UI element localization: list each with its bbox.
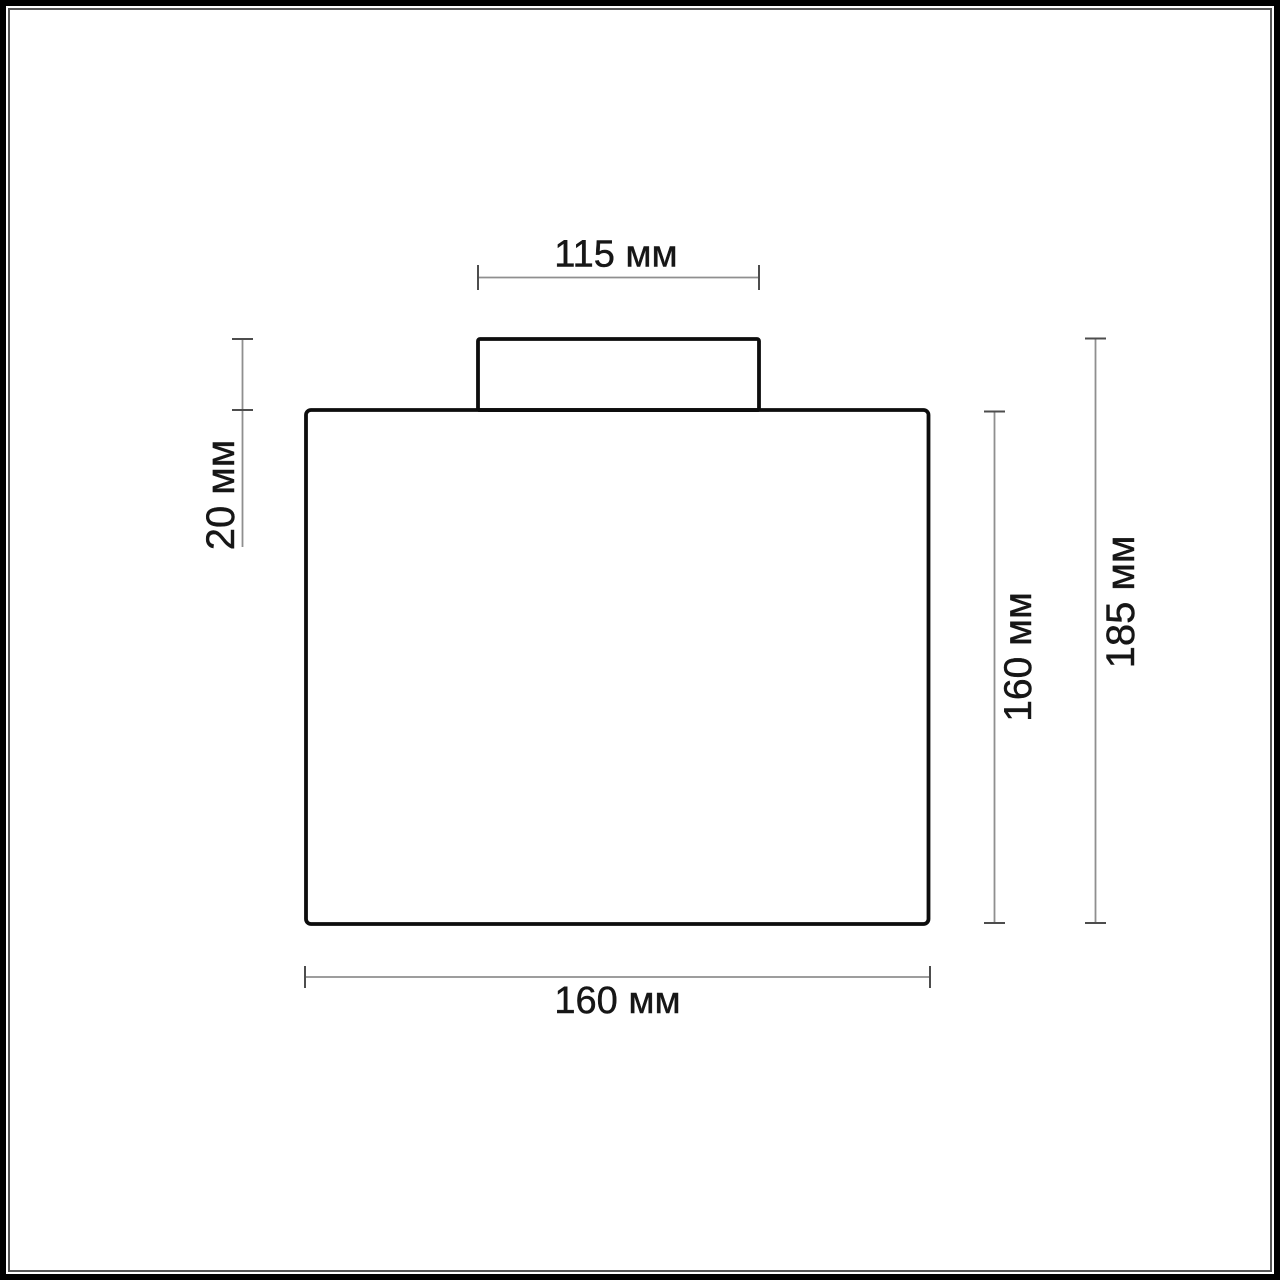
svg-text:185 мм: 185 мм <box>1099 536 1143 669</box>
svg-text:20 мм: 20 мм <box>199 440 243 551</box>
svg-text:160 мм: 160 мм <box>554 980 680 1022</box>
svg-text:160 мм: 160 мм <box>997 592 1040 722</box>
svg-text:115 мм: 115 мм <box>554 234 677 276</box>
